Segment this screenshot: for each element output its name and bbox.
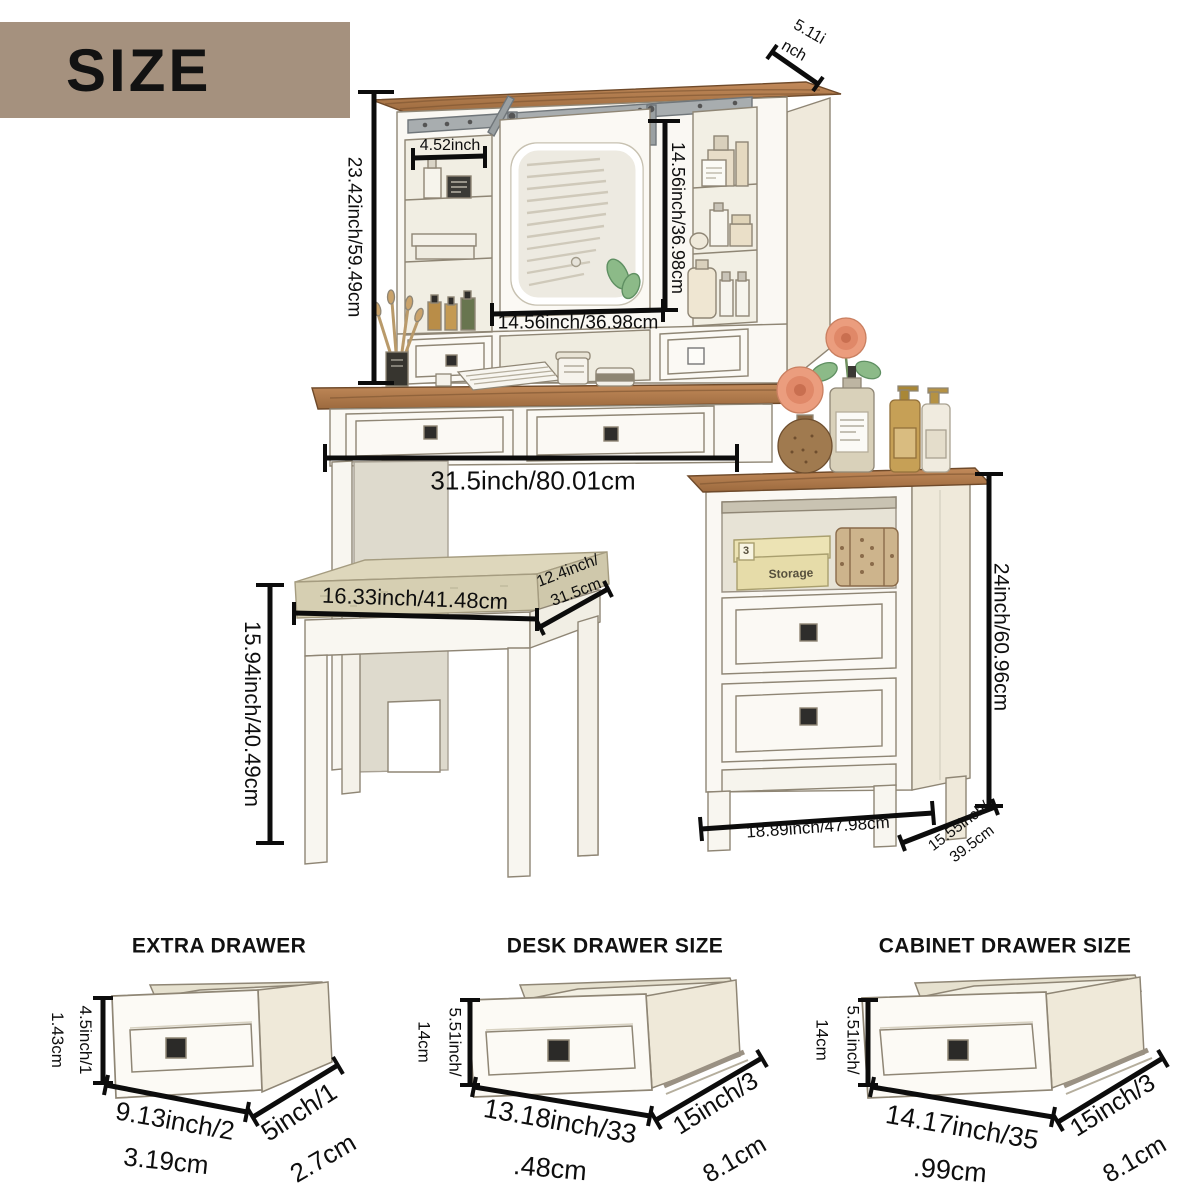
amber-pump-bottle <box>890 386 920 472</box>
hutch-height-label: 23.42inch/59.49cm <box>343 157 364 318</box>
cabinet-drawer-knob-bottom <box>800 708 817 725</box>
cabinet-drawer-title: CABINET DRAWER SIZE <box>879 934 1132 957</box>
size-banner-title: SIZE <box>66 36 211 105</box>
storage-box-label: Storage <box>768 567 813 582</box>
cabinet-height-label: 24inch/60.96cm <box>989 563 1012 711</box>
extra-drawer-knob <box>166 1038 186 1058</box>
mirror-width-label: 14.56inch/36.98cm <box>498 314 659 335</box>
extra-drawer-figure <box>112 982 332 1098</box>
desk-drawer-figure <box>468 978 748 1097</box>
cream-pump-bottle <box>922 388 950 472</box>
desk-drawer-height-label: 5.51inch/ 14cm <box>408 1008 469 1077</box>
hutch-drawer-knob-right <box>688 348 704 364</box>
cabinet-drawer-figure <box>862 975 1152 1098</box>
size-infographic: SIZE 23.42inch/59.49cm 4.52inch 5.11i nc… <box>0 0 1200 1200</box>
hutch-right-shelves <box>688 107 757 326</box>
hutch-left-shelves <box>405 135 492 335</box>
desk-width-label: 31.5inch/80.01cm <box>430 467 635 496</box>
cabinet-illustration <box>688 468 990 851</box>
desk-drawer-knob <box>548 1040 569 1061</box>
led-mirror-door <box>500 109 650 317</box>
cabinet-drawer-height-label: 5.51inch/ 14cm <box>806 1006 867 1075</box>
cabinet-drawer-knob <box>948 1040 968 1060</box>
desk-drawer-knob-left <box>424 426 437 439</box>
cabinet-drawer-width-label-2: .99cm <box>912 1153 988 1189</box>
desk-drawer-title: DESK DRAWER SIZE <box>507 934 723 957</box>
storage-box-number: 3 <box>743 545 749 557</box>
hutch-drawer-knob-left <box>446 355 457 366</box>
size-banner: SIZE <box>0 22 350 118</box>
hutch-illustration <box>372 82 841 384</box>
extra-drawer-height-label: 4.5inch/1 1.43cm <box>43 1006 99 1075</box>
desk-drawer-width-label-2: .48cm <box>512 1151 588 1187</box>
mirror-height-label: 14.56inch/36.98cm <box>667 142 687 294</box>
desk-drawer-knob-right <box>604 427 618 441</box>
extra-drawer-title: EXTRA DRAWER <box>132 934 306 957</box>
shelf-width-label: 4.52inch <box>420 137 481 155</box>
vase-with-flower <box>777 367 832 473</box>
patterned-trunk <box>836 528 898 586</box>
cabinet-drawer-knob-top <box>800 624 817 641</box>
furniture-illustration <box>0 0 1200 1200</box>
dahlia-flower-tall <box>826 318 866 358</box>
stool-height-label: 15.94inch/40.49cm <box>240 621 264 807</box>
